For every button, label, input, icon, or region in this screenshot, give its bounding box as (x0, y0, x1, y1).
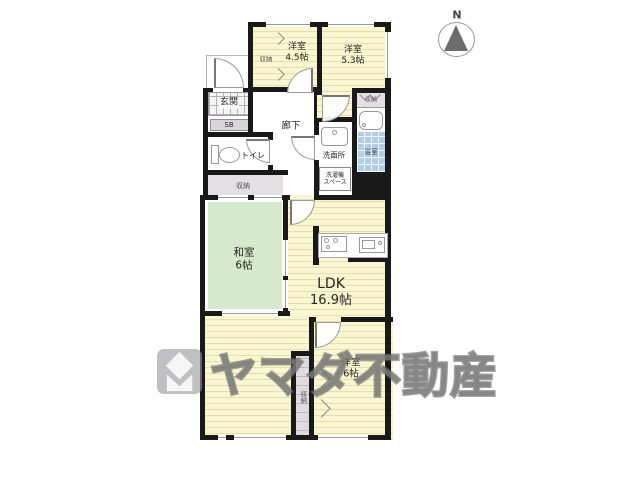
compass-needle-icon (444, 25, 468, 51)
room-label-yoshitsu-53: 洋室 5.3帖 (341, 45, 364, 67)
sliding-door (222, 311, 278, 316)
window (328, 22, 374, 27)
compass-n-label: N (452, 8, 461, 21)
watermark: ヤマダ不動産 (156, 337, 498, 406)
sliding-door (283, 240, 288, 276)
room-size: 5.3帖 (341, 56, 364, 67)
stove-burner-icon (326, 245, 330, 249)
wall (352, 88, 357, 198)
sliding-door (254, 195, 282, 200)
shoebox-label: SB (224, 121, 233, 129)
closet-label: 収納 (365, 96, 377, 103)
room-name: LDK (310, 276, 352, 293)
sliding-door (218, 195, 248, 200)
bathtub-icon (359, 111, 383, 130)
stove-burner-icon (333, 238, 338, 243)
washer-space-line2: スペース (323, 179, 346, 186)
washbasin-faucet-icon (332, 130, 337, 135)
room-size: 4.5帖 (285, 53, 308, 64)
floor-plan: 洋室 4.5帖 収納 洋室 5.3帖 玄関 SB 廊下 トイレ 収納 収納 洗面… (0, 0, 640, 480)
room-name: 和室 (234, 246, 255, 259)
bathroom-label: 浴室 (364, 148, 378, 156)
compass: N (434, 4, 484, 62)
wall (203, 88, 213, 92)
room-size: 16.9帖 (310, 293, 352, 309)
corridor-label: 廊下 (281, 120, 300, 131)
toilet-bowl-icon (219, 147, 240, 163)
watermark-text: ヤマダ不動産 (210, 337, 498, 406)
wall (248, 87, 253, 137)
wall (248, 27, 253, 92)
kitchen-sink-basin-icon (362, 240, 375, 249)
room-size: 6帖 (234, 259, 255, 272)
wall (203, 132, 273, 137)
sliding-door (283, 280, 288, 308)
toilet-label: トイレ (241, 151, 265, 161)
stove-burner-icon (324, 238, 329, 243)
window (385, 32, 391, 78)
window (318, 435, 368, 440)
window (266, 22, 310, 27)
bathtub-drain-icon (362, 123, 366, 127)
wall (203, 88, 208, 200)
washroom-label: 洗面所 (323, 151, 346, 160)
closet-label: 収納 (260, 56, 273, 64)
room-label-washitsu: 和室 6帖 (234, 246, 255, 271)
toilet-tank-icon (211, 145, 219, 164)
room-label-yoshitsu-45: 洋室 4.5帖 (285, 42, 308, 64)
genkan-label: 玄関 (219, 98, 239, 109)
washer-space-line1: 洗濯機 (323, 172, 346, 179)
kitchen-faucet-icon (378, 241, 382, 245)
watermark-logo-icon (156, 348, 203, 395)
room-name: 洋室 (285, 42, 308, 53)
room-name: 洋室 (341, 45, 364, 56)
closet-label: 収納 (236, 182, 250, 190)
wall (203, 170, 288, 175)
room-label-ldk: LDK 16.9帖 (310, 276, 352, 308)
wall (226, 435, 234, 440)
washer-space-label: 洗濯機 スペース (323, 172, 346, 186)
